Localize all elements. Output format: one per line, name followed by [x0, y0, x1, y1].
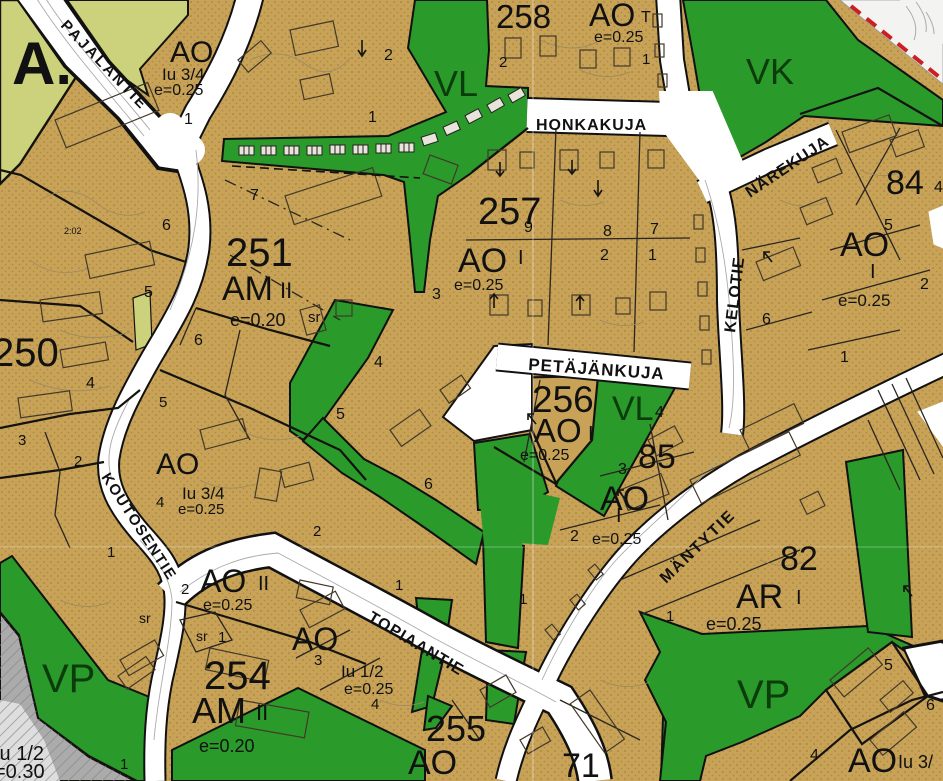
svg-text:1: 1 — [666, 608, 674, 625]
svg-text:I: I — [616, 505, 622, 527]
svg-text:e=0.20: e=0.20 — [199, 736, 255, 756]
svg-text:6: 6 — [762, 311, 771, 328]
svg-text:VP: VP — [737, 673, 790, 717]
svg-text:e=0.25: e=0.25 — [706, 614, 762, 634]
svg-text:sr: sr — [308, 309, 321, 326]
svg-text:2: 2 — [313, 523, 321, 540]
svg-text:7: 7 — [250, 187, 259, 204]
svg-text:258: 258 — [496, 0, 551, 35]
svg-text:6: 6 — [194, 332, 203, 349]
svg-text:85: 85 — [638, 438, 676, 476]
svg-text:4: 4 — [655, 404, 664, 421]
svg-text:AO: AO — [840, 226, 889, 264]
svg-text:1: 1 — [642, 51, 650, 68]
svg-text:4: 4 — [810, 747, 819, 764]
svg-text:6: 6 — [424, 476, 433, 493]
svg-text:9: 9 — [524, 219, 533, 236]
svg-text:Iu 3/: Iu 3/ — [898, 752, 933, 772]
svg-text:A.: A. — [12, 30, 72, 97]
svg-text:e=0.25: e=0.25 — [520, 447, 569, 464]
svg-text:I: I — [870, 261, 876, 283]
svg-text:sr: sr — [139, 610, 151, 626]
svg-text:1: 1 — [840, 349, 849, 366]
svg-text:AO: AO — [458, 242, 507, 280]
svg-text:250: 250 — [0, 331, 59, 375]
svg-text:AM: AM — [222, 270, 273, 308]
svg-text:=0.30: =0.30 — [0, 761, 45, 781]
svg-text:e=0.25: e=0.25 — [344, 681, 393, 698]
svg-text:e=0.25: e=0.25 — [592, 531, 641, 548]
svg-text:AO: AO — [600, 480, 649, 518]
svg-text:e=0.20: e=0.20 — [230, 310, 286, 330]
svg-text:AO: AO — [200, 563, 246, 599]
svg-text:3: 3 — [314, 652, 322, 669]
svg-text:AO: AO — [534, 412, 582, 449]
svg-text:I: I — [796, 587, 802, 609]
svg-text:VL: VL — [434, 63, 478, 104]
svg-text:e=0.25: e=0.25 — [178, 501, 224, 518]
svg-text:5: 5 — [144, 284, 153, 301]
svg-text:2: 2 — [384, 47, 393, 64]
svg-text:I: I — [518, 247, 524, 269]
svg-text:sr: sr — [196, 628, 208, 644]
svg-text:4: 4 — [371, 696, 379, 713]
svg-text:5: 5 — [159, 394, 167, 411]
svg-text:e=0.25: e=0.25 — [594, 29, 643, 46]
svg-text:AO: AO — [408, 744, 457, 781]
svg-text:VK: VK — [746, 51, 794, 92]
svg-text:2:02: 2:02 — [64, 226, 82, 236]
svg-text:71: 71 — [562, 747, 600, 781]
svg-text:VL: VL — [612, 390, 654, 428]
svg-text:VP: VP — [42, 657, 95, 701]
svg-text:82: 82 — [780, 540, 818, 578]
svg-text:AR: AR — [736, 578, 783, 616]
svg-text:1: 1 — [648, 247, 657, 264]
svg-text:6: 6 — [926, 697, 935, 714]
svg-text:2: 2 — [920, 276, 929, 293]
svg-text:4: 4 — [934, 179, 943, 196]
svg-text:3: 3 — [618, 461, 627, 478]
svg-text:255: 255 — [426, 708, 486, 749]
svg-text:3: 3 — [18, 432, 26, 449]
svg-text:II: II — [280, 278, 292, 303]
svg-text:2: 2 — [74, 453, 82, 470]
svg-text:7: 7 — [650, 221, 659, 238]
svg-text:4: 4 — [374, 354, 383, 371]
svg-text:1: 1 — [120, 756, 128, 773]
svg-text:AM: AM — [192, 690, 246, 731]
svg-text:251: 251 — [226, 231, 293, 275]
svg-text:1: 1 — [395, 577, 403, 594]
svg-text:e=0.25: e=0.25 — [203, 597, 252, 614]
svg-text:4: 4 — [86, 375, 95, 392]
svg-text:1: 1 — [218, 629, 226, 646]
svg-text:AO: AO — [156, 448, 199, 481]
svg-text:HONKAKUJA: HONKAKUJA — [536, 117, 647, 134]
svg-text:1: 1 — [368, 109, 377, 126]
svg-text:4: 4 — [156, 494, 164, 511]
svg-text:II: II — [258, 573, 269, 595]
svg-text:1: 1 — [519, 591, 527, 608]
svg-text:e=0.25: e=0.25 — [838, 291, 890, 310]
svg-text:II: II — [256, 700, 268, 725]
svg-text:e=0.25: e=0.25 — [154, 82, 203, 99]
svg-text:Iu 1/2: Iu 1/2 — [341, 662, 384, 681]
svg-text:3: 3 — [432, 286, 441, 303]
svg-text:T: T — [641, 9, 651, 26]
svg-text:I: I — [588, 423, 594, 445]
svg-text:1: 1 — [184, 111, 193, 128]
svg-text:2: 2 — [181, 581, 189, 598]
svg-text:8: 8 — [603, 223, 612, 240]
svg-text:AO: AO — [848, 742, 897, 780]
svg-text:6: 6 — [162, 217, 171, 234]
svg-text:2: 2 — [600, 247, 609, 264]
svg-text:e=0.25: e=0.25 — [454, 277, 503, 294]
svg-text:2: 2 — [570, 528, 579, 545]
svg-text:5: 5 — [336, 406, 345, 423]
svg-text:2: 2 — [499, 54, 507, 71]
svg-text:5: 5 — [884, 657, 893, 674]
svg-text:1: 1 — [107, 544, 115, 561]
svg-text:84: 84 — [886, 164, 924, 202]
